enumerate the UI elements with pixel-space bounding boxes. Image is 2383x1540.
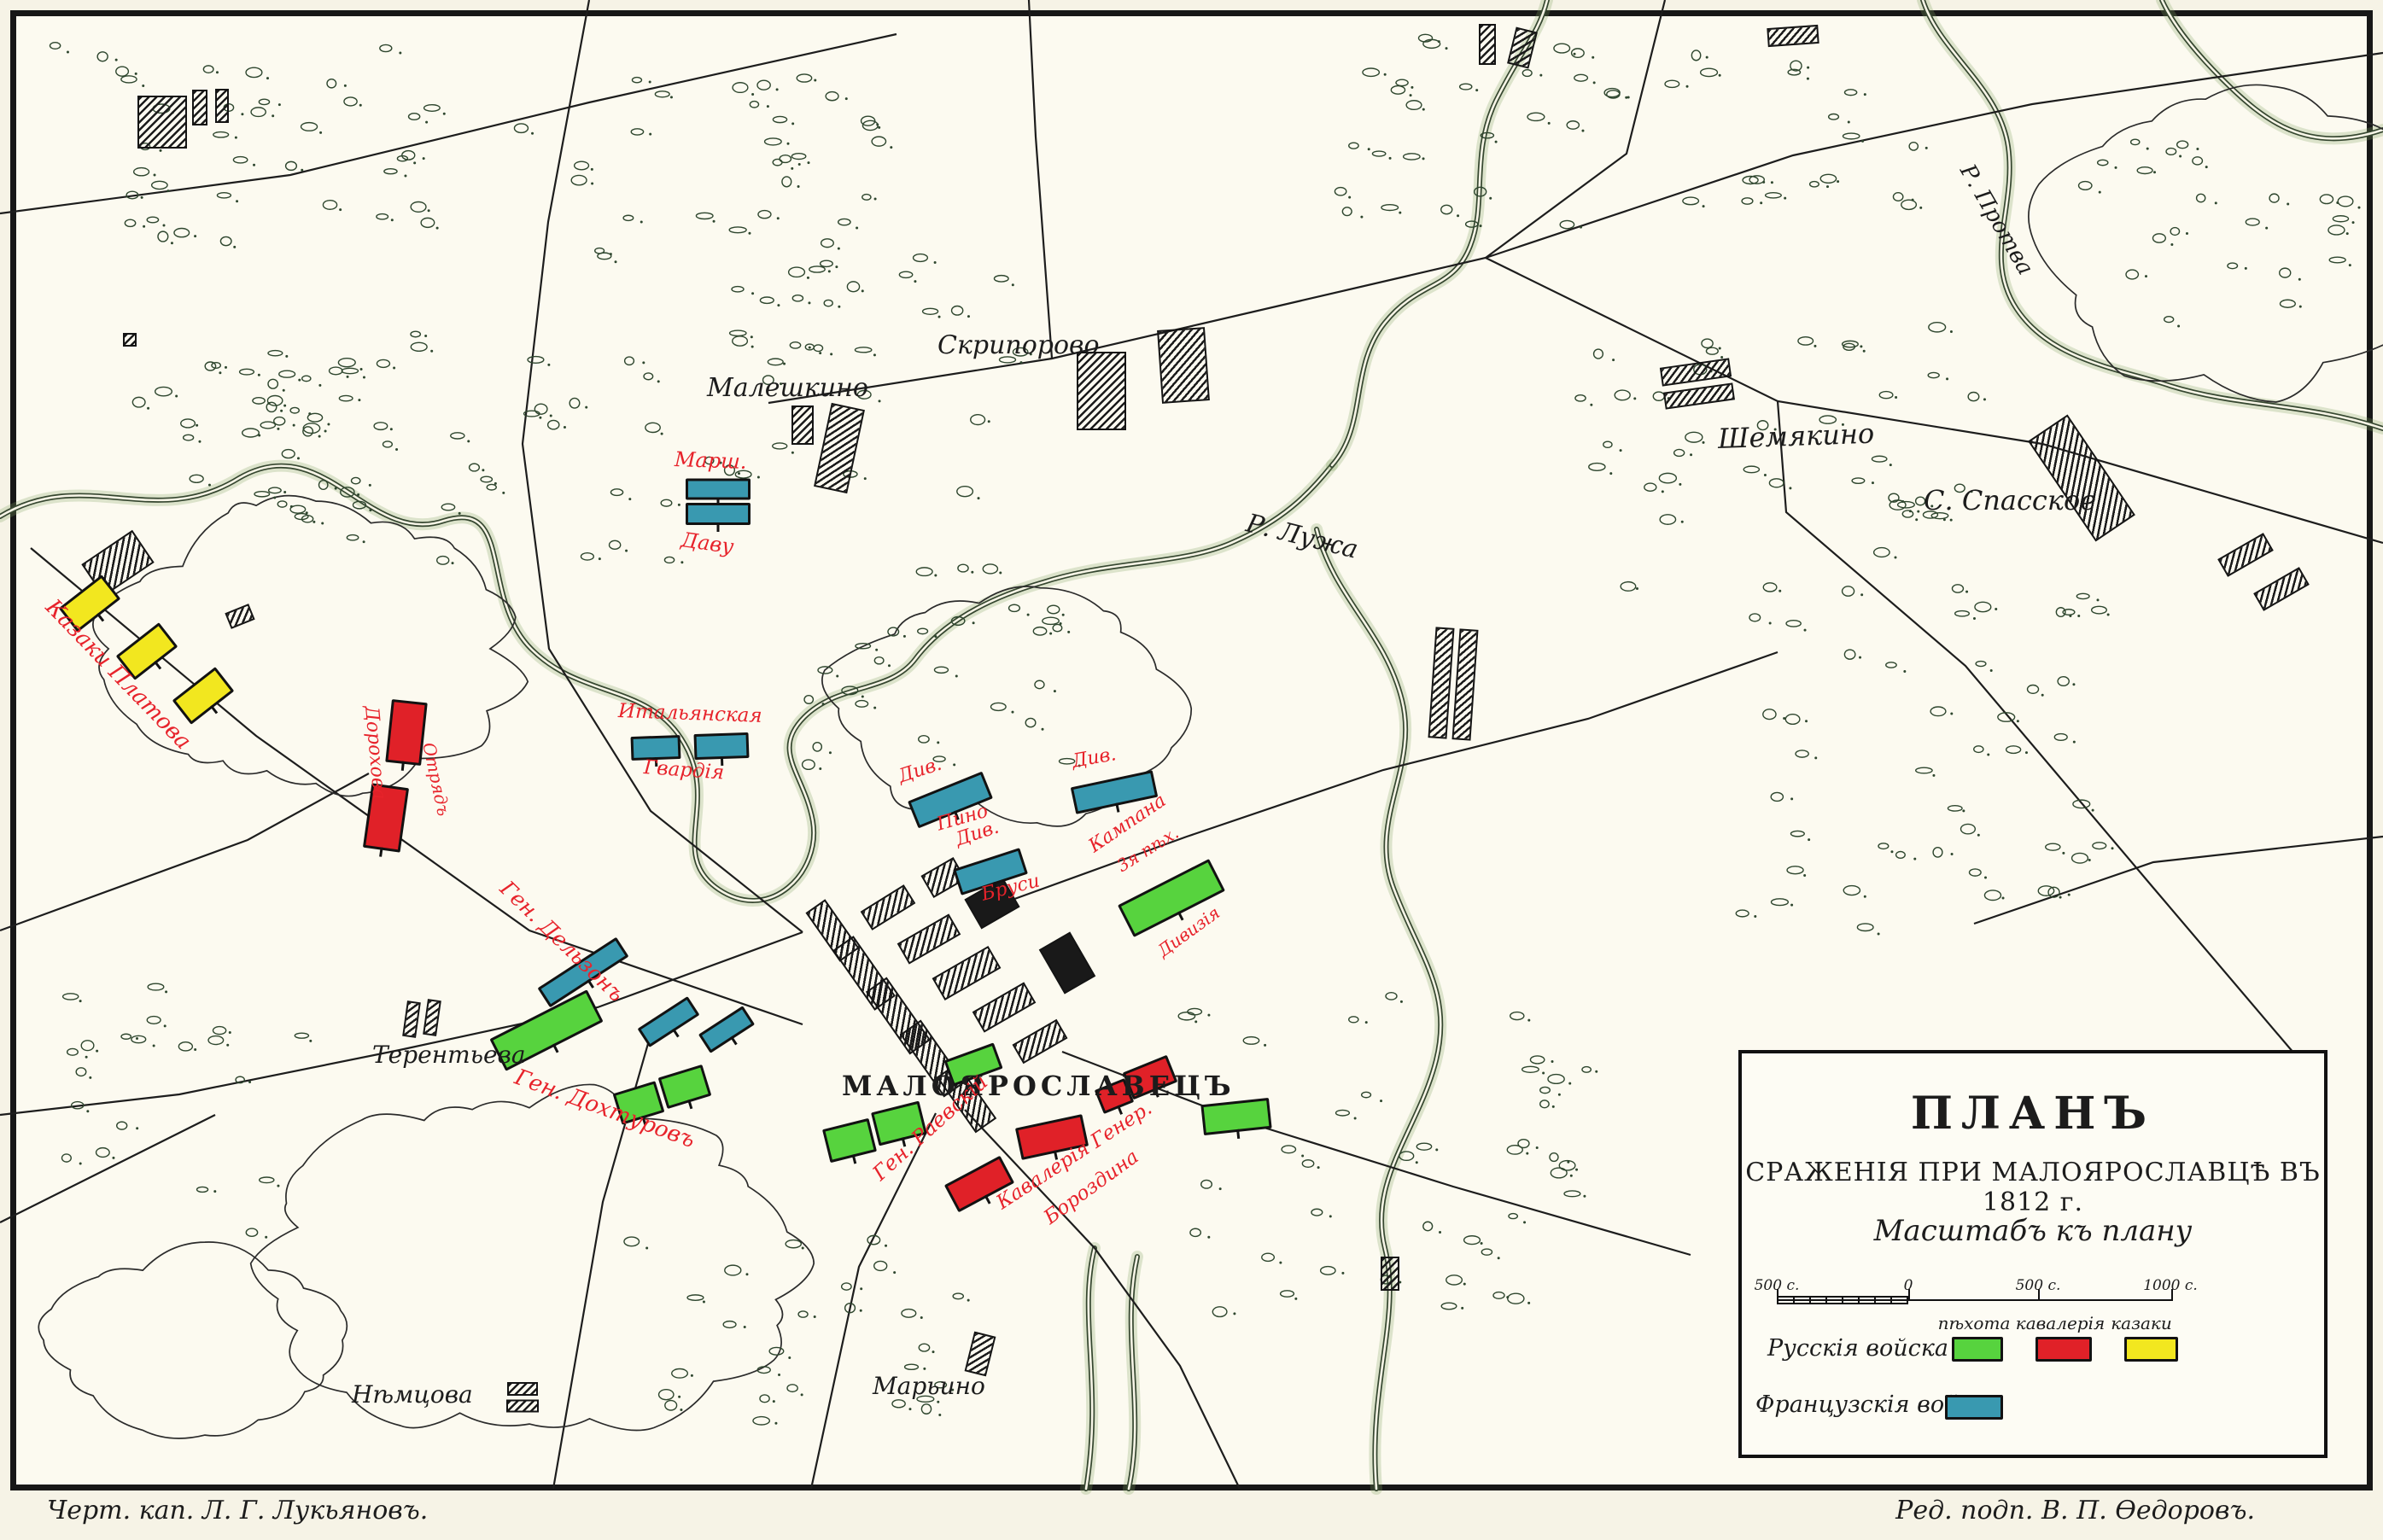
- scale-caption: Масштабъ къ плану: [1742, 1214, 2324, 1248]
- label-kazaki-platova: Казаки Платова: [42, 596, 196, 754]
- scale-tick: [1908, 1289, 1910, 1301]
- label-shemyakino: Шемякино: [1717, 420, 1874, 452]
- label-div-kampana-1: Див.: [1071, 745, 1118, 772]
- scale-ladder: [1777, 1296, 1908, 1304]
- label-delzons: Ген. Дельзонъ: [496, 878, 628, 1006]
- legend-header-cossacks: казаки: [2111, 1313, 2172, 1333]
- label-otryad: Отрядъ: [420, 741, 453, 818]
- label-davout: Даву: [680, 529, 734, 557]
- label-skriporovo: Скрипорово: [937, 333, 1100, 359]
- legend-header-infantry: пѣхота: [1938, 1313, 2011, 1333]
- legend-box: ПЛАНЪ СРАЖЕНІЯ ПРИ МАЛОЯРОСЛАВЦѢ ВЪ 1812…: [1738, 1050, 2328, 1458]
- label-div-pino-1: Див.: [897, 755, 944, 787]
- legend-swatch-green: [1952, 1337, 2003, 1362]
- plan-subtitle: СРАЖЕНІЯ ПРИ МАЛОЯРОСЛАВЦѢ ВЪ 1812 г.: [1742, 1158, 2324, 1217]
- label-river-luzha: Р. Лужа: [1243, 510, 1360, 563]
- label-marshal: Марш.: [675, 449, 747, 472]
- credit-drafter: Черт. кап. Л. Г. Лукьяновъ.: [47, 1496, 428, 1525]
- label-nemtsova: Нѣмцова: [352, 1383, 473, 1407]
- legend-header-cavalry: кавалерія: [2016, 1313, 2105, 1333]
- label-maleshkino: Малешкино: [707, 376, 868, 401]
- label-italian: Итальянская: [618, 702, 762, 726]
- legend-row-french-swatches: [1945, 1395, 2003, 1420]
- legend-swatch-yellow: [2124, 1337, 2178, 1362]
- legend-swatch-blue: [1945, 1395, 2003, 1420]
- label-guard: Гвардія: [643, 758, 725, 784]
- label-maloyaroslavets: МАЛОЯРОСЛАВЕЦЪ: [842, 1072, 1235, 1100]
- label-dorohov: Дорохова: [361, 705, 388, 801]
- plan-title: ПЛАНЪ: [1742, 1088, 2324, 1140]
- label-div-brusi-2: Бруси: [979, 872, 1042, 905]
- label-river-protva: Р. Протва: [1956, 161, 2037, 279]
- label-dokhturov: Ген. Дохтуровъ: [512, 1066, 698, 1152]
- credit-editor: Ред. подп. В. П. Ѳедоровъ.: [1895, 1496, 2255, 1525]
- label-maryino: Марьино: [873, 1374, 985, 1398]
- scale-tick: [1777, 1289, 1778, 1301]
- scale-tick: [2038, 1289, 2040, 1301]
- legend-swatch-red: [2035, 1337, 2092, 1362]
- scale-tick-label: 1000 с.: [2143, 1277, 2198, 1294]
- legend-row-russian-label: Русскія войска: [1767, 1335, 1948, 1362]
- legend-row-russian-swatches: [1952, 1337, 2178, 1362]
- map-canvas: МалешкиноСкрипоровоШемякиноС. СпасскоеР.…: [0, 0, 2383, 1540]
- label-3-peh-div-2: Дивизія: [1154, 903, 1223, 960]
- scale-tick: [2171, 1289, 2173, 1301]
- label-terentyeva: Терентьева: [372, 1043, 526, 1067]
- label-spasskoe: С. Спасское: [1924, 487, 2096, 514]
